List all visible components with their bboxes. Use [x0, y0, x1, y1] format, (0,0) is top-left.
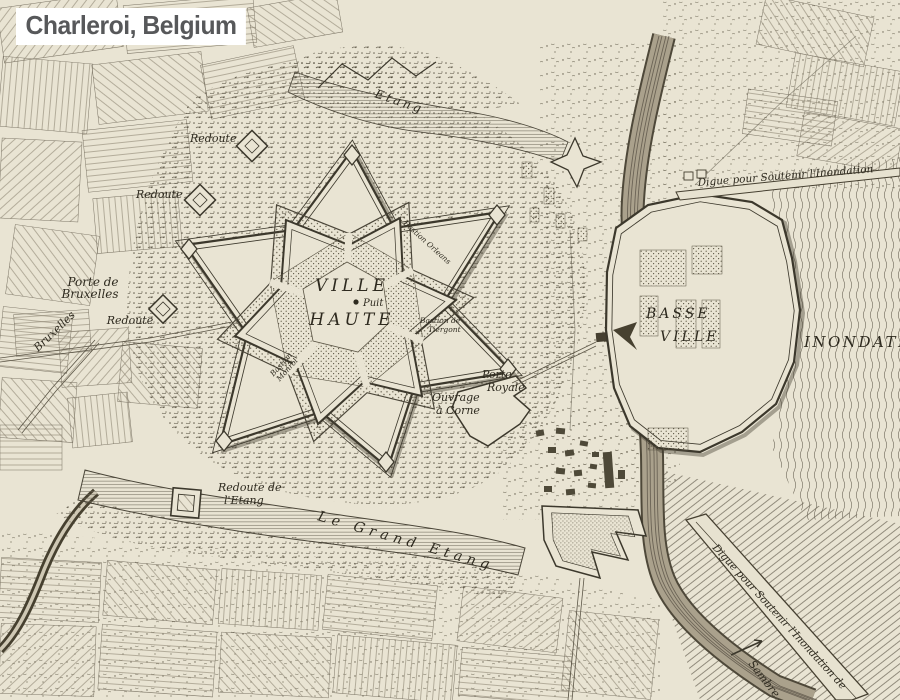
house: [618, 470, 625, 479]
field-plot: [0, 138, 82, 222]
field-plot: [103, 560, 217, 624]
label-redoute-north1: Redoute: [189, 132, 237, 145]
house: [556, 468, 566, 475]
house: [556, 428, 565, 435]
house: [592, 452, 599, 457]
label-redoute-north2: Redoute: [135, 188, 183, 201]
field-plot: [0, 425, 62, 470]
title-overlay: Charleroi, Belgium: [16, 8, 246, 45]
house: [590, 464, 598, 470]
house: [544, 486, 552, 492]
label-ouvrage-corne-2: à Corne: [436, 404, 480, 417]
field-plots-top-right: [660, 0, 900, 190]
house: [574, 470, 583, 477]
house: [566, 489, 575, 496]
house: [565, 449, 575, 456]
label-ouvrage-corne-1: Ouvrage: [432, 391, 480, 404]
field-plot: [0, 557, 102, 622]
well-dot: [353, 299, 358, 304]
label-ville: VILLE: [315, 276, 389, 296]
label-redoute-etang-2: l'Etang: [224, 494, 264, 507]
field-plot: [0, 56, 93, 134]
label-basse: BASSE: [645, 306, 711, 322]
label-basse-ville: VILLE: [660, 329, 719, 345]
redoubt-etang: [171, 488, 201, 518]
field-plot: [219, 632, 332, 698]
house: [588, 483, 596, 489]
field-plot: [457, 586, 563, 653]
label-bastion-tiergont-2: Tiergont: [428, 325, 462, 334]
label-redoute-etang-1: Redoute de: [217, 481, 282, 494]
house: [548, 447, 556, 453]
field-plot: [458, 647, 572, 700]
label-porte-royale-1: Porte: [481, 368, 512, 381]
map-engraving: Etang Redoute Redoute Redoute Porte de B…: [0, 0, 900, 700]
field-plot: [98, 624, 217, 697]
label-porte-bruxelles-2: Bruxelles: [60, 287, 118, 301]
label-porte-royale-2: Royale: [486, 381, 525, 394]
dike-marker: [684, 172, 693, 180]
field-plot: [333, 635, 458, 700]
label-bastion-tiergont-1: Bastion de: [419, 316, 461, 325]
field-plot: [218, 569, 322, 631]
label-haute: HAUTE: [308, 310, 394, 330]
label-redoute-west: Redoute: [106, 314, 154, 327]
engraved-map-charleroi: Etang Redoute Redoute Redoute Porte de B…: [0, 0, 900, 700]
label-inondation: INONDATION: [803, 333, 900, 351]
field-plot: [322, 574, 437, 640]
label-puit: Puit: [362, 298, 384, 309]
